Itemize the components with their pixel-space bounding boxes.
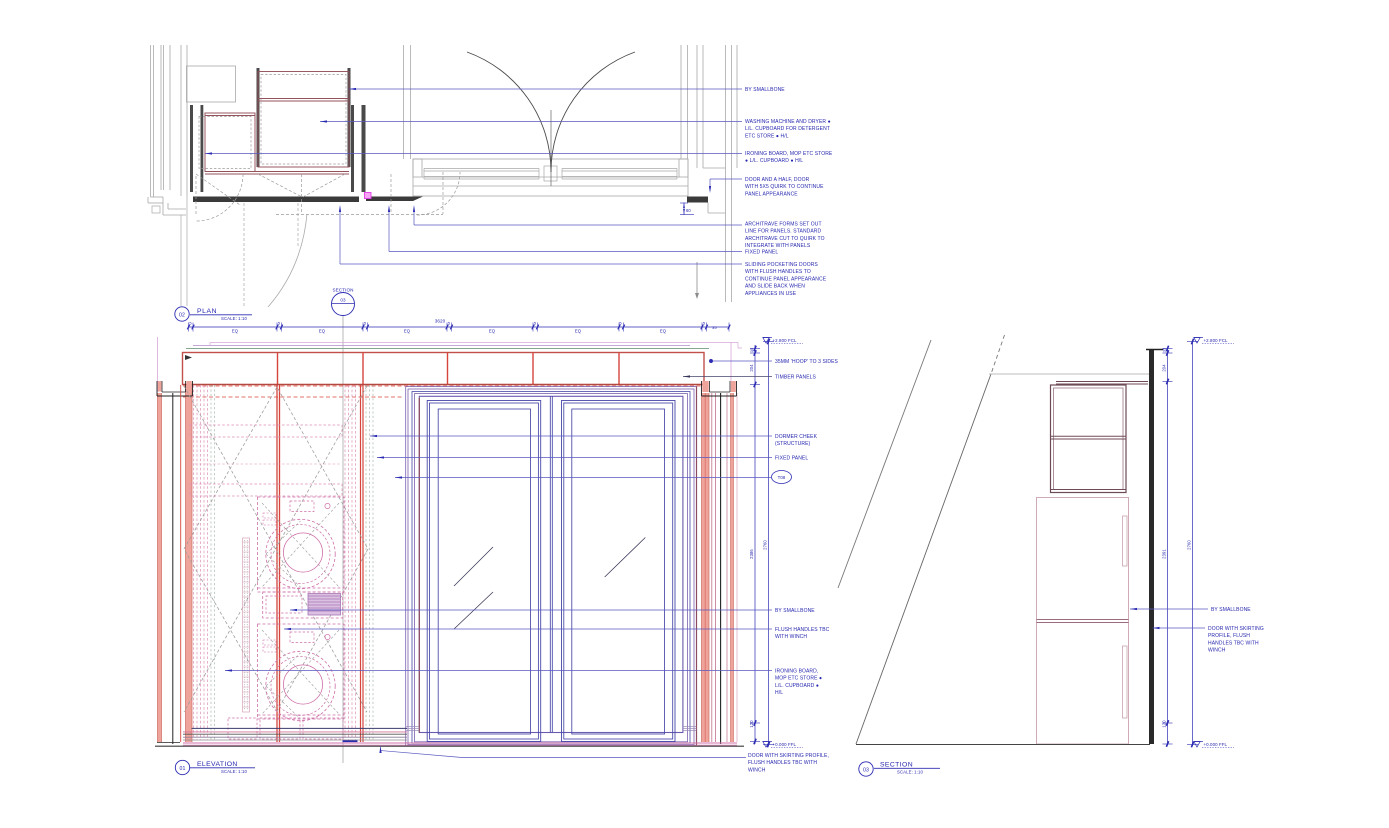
svg-text:PLAN: PLAN bbox=[197, 308, 217, 315]
svg-text:+2.800 FCL: +2.800 FCL bbox=[1204, 338, 1229, 343]
svg-text:SCALE: 1:10: SCALE: 1:10 bbox=[221, 769, 247, 774]
svg-text:SLIDING POCKETING DOORS: SLIDING POCKETING DOORS bbox=[745, 262, 818, 268]
svg-text:FIXED PANEL: FIXED PANEL bbox=[745, 250, 778, 256]
svg-text:ARCHITRAVE CUT TO QUIRK TO: ARCHITRAVE CUT TO QUIRK TO bbox=[745, 236, 825, 242]
svg-text:02: 02 bbox=[179, 312, 185, 318]
svg-text:60: 60 bbox=[686, 208, 691, 213]
svg-text:EQ: EQ bbox=[404, 329, 411, 334]
svg-text:BY SMALLBONE: BY SMALLBONE bbox=[775, 608, 815, 614]
svg-text:HANDLES TBC WITH: HANDLES TBC WITH bbox=[1208, 640, 1259, 646]
svg-text:FLUSH HANDLES TBC: FLUSH HANDLES TBC bbox=[775, 627, 830, 633]
svg-text:EQ: EQ bbox=[232, 329, 239, 334]
svg-text:PROFILE, FLUSH: PROFILE, FLUSH bbox=[1208, 633, 1250, 639]
svg-text:+0.000 FFL: +0.000 FFL bbox=[773, 742, 797, 747]
svg-text:APPLIANCES IN USE: APPLIANCES IN USE bbox=[745, 291, 797, 297]
svg-text:PANEL APPEARANCE: PANEL APPEARANCE bbox=[745, 191, 798, 197]
svg-text:TIMBER PANELS: TIMBER PANELS bbox=[775, 375, 817, 381]
svg-text:35: 35 bbox=[712, 325, 717, 330]
svg-text:(STRUCTURE): (STRUCTURE) bbox=[775, 441, 810, 447]
svg-text:ARCHITRAVE FORMS SET OUT: ARCHITRAVE FORMS SET OUT bbox=[745, 222, 822, 228]
svg-text:2760: 2760 bbox=[1186, 540, 1191, 550]
svg-text:IRONING BOARD,: IRONING BOARD, bbox=[775, 669, 818, 675]
svg-text:2386: 2386 bbox=[749, 549, 754, 559]
svg-text:120: 120 bbox=[749, 720, 754, 728]
svg-text:BY SMALLBONE: BY SMALLBONE bbox=[745, 87, 785, 93]
svg-text:35: 35 bbox=[1162, 348, 1166, 352]
svg-text:WINCH: WINCH bbox=[748, 767, 766, 773]
svg-text:2760: 2760 bbox=[762, 540, 767, 550]
svg-text:AND SLIDE BACK WHEN: AND SLIDE BACK WHEN bbox=[745, 284, 805, 290]
svg-text:SCALE: 1:10: SCALE: 1:10 bbox=[897, 769, 923, 774]
svg-text:FIXED PANEL: FIXED PANEL bbox=[775, 456, 808, 462]
svg-text:BY SMALLBONE: BY SMALLBONE bbox=[1211, 607, 1251, 613]
svg-text:SECTION: SECTION bbox=[332, 288, 353, 293]
svg-text:35: 35 bbox=[750, 348, 754, 352]
svg-text:FLUSH HANDLES TBC WITH: FLUSH HANDLES TBC WITH bbox=[748, 760, 817, 766]
svg-text:204: 204 bbox=[1161, 364, 1166, 372]
svg-text:SECTION: SECTION bbox=[880, 762, 913, 769]
svg-text:INTEGRATE WITH PANELS: INTEGRATE WITH PANELS bbox=[745, 243, 811, 249]
svg-text:03: 03 bbox=[340, 298, 346, 303]
svg-text:DOOR WITH SKIRTING: DOOR WITH SKIRTING bbox=[1208, 626, 1264, 632]
svg-text:+0.000 FFL: +0.000 FFL bbox=[1204, 742, 1228, 747]
svg-text:EQ: EQ bbox=[319, 329, 326, 334]
svg-text:SCALE: 1:10: SCALE: 1:10 bbox=[221, 316, 247, 321]
svg-text:EQ: EQ bbox=[575, 329, 582, 334]
svg-text:WASHING MACHINE AND DRYER: WASHING MACHINE AND DRYER ● bbox=[745, 119, 831, 125]
svg-text:204: 204 bbox=[749, 364, 754, 372]
svg-text:EQ: EQ bbox=[660, 329, 667, 334]
svg-text:H/L: H/L bbox=[775, 690, 783, 696]
svg-text:ELEVATION: ELEVATION bbox=[197, 761, 238, 768]
svg-text:3620: 3620 bbox=[435, 319, 446, 324]
svg-text:IRONING BOARD, MOP ETC STO: IRONING BOARD, MOP ETC STORE bbox=[745, 151, 833, 157]
svg-text:+2.800 FCL: +2.800 FCL bbox=[773, 338, 798, 343]
svg-text:01: 01 bbox=[180, 766, 186, 772]
svg-text:DOOR WITH SKIRTING PROFILE,: DOOR WITH SKIRTING PROFILE, bbox=[748, 753, 829, 759]
svg-text:MOP ETC STORE ●: MOP ETC STORE ● bbox=[775, 676, 822, 682]
svg-text:WITH 5X5 QUIRK TO CONTINUE: WITH 5X5 QUIRK TO CONTINUE bbox=[745, 184, 824, 190]
svg-text:L/L. CUPBOARD FOR DETERGENT: L/L. CUPBOARD FOR DETERGENT bbox=[745, 126, 830, 132]
svg-text:WINCH: WINCH bbox=[1208, 648, 1226, 654]
svg-text:T08: T08 bbox=[778, 475, 786, 480]
svg-text:L/L. CUPBOARD ●: L/L. CUPBOARD ● bbox=[775, 683, 819, 689]
svg-text:DOOR AND A HALF, DOOR: DOOR AND A HALF, DOOR bbox=[745, 177, 810, 183]
svg-text:EQ: EQ bbox=[489, 329, 496, 334]
svg-text:DORMER CHEEK: DORMER CHEEK bbox=[775, 434, 818, 440]
svg-text:03: 03 bbox=[863, 767, 869, 773]
svg-text:● L/L. CUPBOARD ● H/L: ● L/L. CUPBOARD ● H/L bbox=[745, 158, 803, 164]
svg-text:CONTINUE PANEL APPEARANCE: CONTINUE PANEL APPEARANCE bbox=[745, 276, 827, 282]
svg-text:ETC STORE ● H/L: ETC STORE ● H/L bbox=[745, 133, 789, 139]
svg-text:LINE FOR PANELS. STANDARD: LINE FOR PANELS. STANDARD bbox=[745, 229, 822, 235]
svg-text:WITH WINCH: WITH WINCH bbox=[775, 634, 807, 640]
svg-text:WITH FLUSH HANDLES TO: WITH FLUSH HANDLES TO bbox=[745, 269, 811, 275]
svg-text:35MM ‘HOOP’ TO 3 SIDES: 35MM ‘HOOP’ TO 3 SIDES bbox=[775, 359, 839, 365]
svg-text:2391: 2391 bbox=[1161, 549, 1166, 559]
svg-text:120: 120 bbox=[1161, 720, 1166, 728]
